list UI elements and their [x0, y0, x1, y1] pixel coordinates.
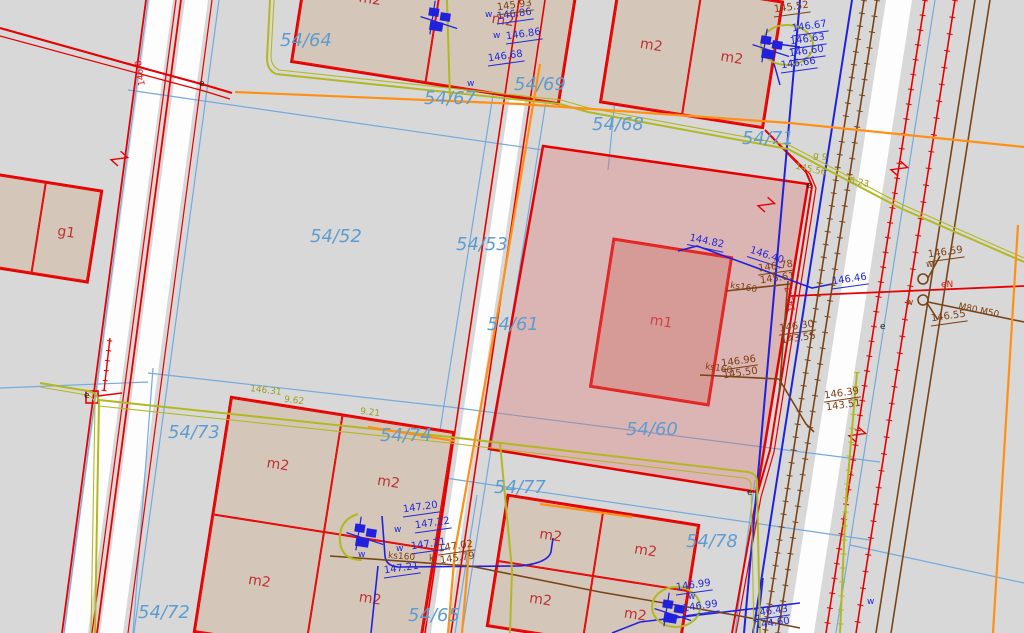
utility-annotation: 9.62	[283, 395, 304, 407]
elevation-label: 147.22	[413, 515, 451, 533]
utility-annotation: g 9	[812, 151, 828, 164]
elevation-label: 146.86	[504, 26, 542, 44]
parcel-number-label[interactable]: 54/72	[138, 602, 190, 623]
utility-annotation: 145.7	[784, 285, 798, 312]
utility-annotation: w	[493, 31, 500, 41]
utility-annotation: e	[199, 79, 205, 89]
utility-annotation: eN	[941, 280, 953, 290]
utility-annotation: 9.21	[359, 407, 380, 419]
utility-annotation: w	[485, 10, 492, 20]
parcel-number-label[interactable]: 54/64	[280, 30, 332, 51]
utility-annotation: e	[747, 488, 753, 498]
elevation-pair-label: 146.78 145.61	[757, 259, 797, 287]
utility-annotation: k	[429, 554, 434, 564]
parcel-number-label[interactable]: 54/69	[514, 74, 566, 95]
parcel-number-label[interactable]: 54/52	[310, 226, 362, 247]
elevation-pair-label: 146.30 143.55	[778, 319, 818, 347]
parcel-number-label[interactable]: 54/67	[424, 88, 476, 109]
label-layer: 54/6454/6754/6954/6854/7154/5254/5354/61…	[0, 0, 1024, 633]
elevation-pair-label: 146.43 144.60	[752, 604, 792, 632]
parcel-number-label[interactable]: 54/53	[456, 234, 508, 255]
elevation-label: 146.46	[830, 271, 868, 289]
parcel-number-label[interactable]: 54/77	[494, 477, 546, 498]
utility-annotation: w	[394, 525, 401, 535]
utility-annotation: w	[688, 592, 695, 602]
parcel-number-label[interactable]: 54/61	[487, 314, 539, 335]
utility-annotation: 6.23	[848, 176, 870, 190]
parcel-number-label[interactable]: 54/71	[742, 128, 794, 149]
map-canvas[interactable]: m2 m2 m2 m2 g1 m1 m2 m2 m2 m2 m2 m2 m2 m…	[0, 0, 1024, 633]
parcel-number-label[interactable]: 54/65	[408, 605, 460, 626]
elevation-label: 146.66	[779, 55, 817, 73]
elevation-label: 146.68	[486, 48, 524, 66]
elevation-label: 145.52	[772, 0, 810, 18]
parcel-number-label[interactable]: 54/73	[168, 422, 220, 443]
elevation-label: 147.21	[382, 560, 420, 578]
utility-annotation: e	[806, 181, 812, 191]
elevation-pair-label: 147.02 145.79	[437, 539, 477, 567]
utility-annotation: w	[358, 550, 365, 560]
utility-annotation: w	[926, 260, 933, 270]
utility-annotation: e	[880, 322, 886, 332]
parcel-number-label[interactable]: 54/60	[626, 419, 678, 440]
utility-annotation: e	[84, 391, 90, 401]
utility-annotation: 146.0	[134, 59, 148, 86]
utility-annotation: w	[867, 597, 874, 607]
parcel-number-label[interactable]: 54/68	[592, 114, 644, 135]
utility-annotation: w	[467, 79, 474, 89]
elevation-label: 144.82	[687, 232, 726, 252]
utility-annotation: w	[906, 298, 913, 308]
parcel-number-label[interactable]: 54/74	[380, 425, 432, 446]
utility-annotation: 146.31	[250, 384, 282, 398]
parcel-number-label[interactable]: 54/78	[686, 531, 738, 552]
elevation-label: 147.20	[401, 499, 439, 517]
utility-annotation: w	[396, 544, 403, 554]
elevation-pair-label: 146.39 143.51	[823, 386, 863, 414]
utility-annotation: ks160	[729, 281, 757, 295]
utility-annotation: 145.56	[794, 162, 827, 178]
